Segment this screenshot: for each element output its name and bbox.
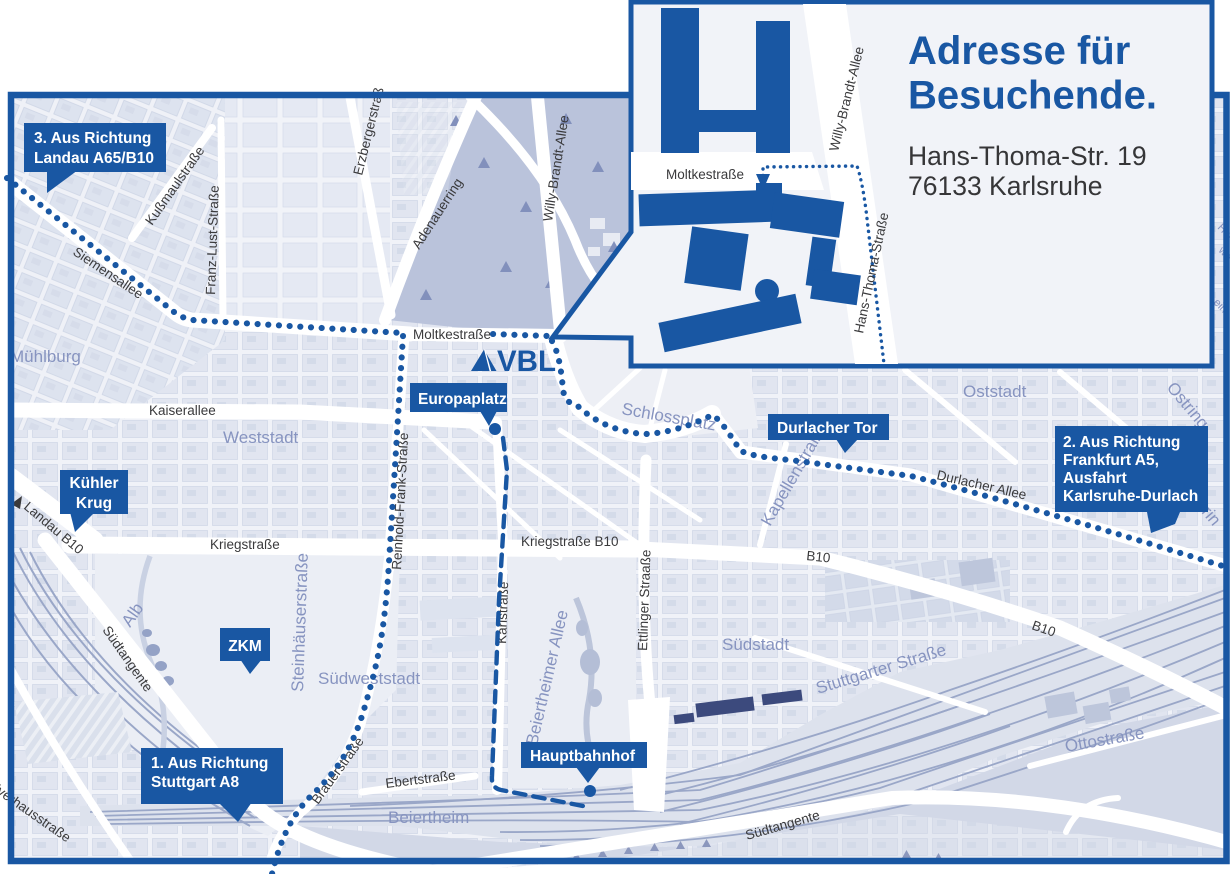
svg-text:Krug: Krug	[76, 495, 112, 512]
svg-text:Besuchende.: Besuchende.	[908, 74, 1157, 118]
svg-text:76133 Karlsruhe: 76133 Karlsruhe	[908, 171, 1102, 201]
svg-text:Moltkestraße: Moltkestraße	[413, 327, 491, 342]
svg-text:Durlacher Tor: Durlacher Tor	[777, 420, 878, 437]
svg-text:VBL: VBL	[497, 345, 556, 378]
svg-text:Kühler: Kühler	[69, 475, 118, 492]
svg-text:Hauptbahnhof: Hauptbahnhof	[530, 748, 636, 765]
svg-text:Landau A65/B10: Landau A65/B10	[34, 150, 154, 167]
svg-text:Oststadt: Oststadt	[963, 382, 1027, 401]
svg-text:Südstadt: Südstadt	[722, 635, 789, 654]
svg-text:Hans-Thoma-Str. 19: Hans-Thoma-Str. 19	[908, 141, 1147, 171]
svg-text:Karlsruhe-Durlach: Karlsruhe-Durlach	[1063, 488, 1198, 505]
svg-text:2. Aus Richtung: 2. Aus Richtung	[1063, 434, 1180, 451]
svg-text:Mühlburg: Mühlburg	[10, 347, 81, 366]
svg-text:Europaplatz: Europaplatz	[418, 391, 507, 408]
svg-text:Kriegstraße B10: Kriegstraße B10	[521, 534, 619, 549]
svg-text:Beiertheim: Beiertheim	[388, 808, 469, 827]
svg-text:Ausfahrt: Ausfahrt	[1063, 470, 1127, 487]
svg-text:Stuttgart A8: Stuttgart A8	[151, 774, 239, 791]
svg-text:1. Aus Richtung: 1. Aus Richtung	[151, 755, 268, 772]
svg-text:Frankfurt A5,: Frankfurt A5,	[1063, 452, 1159, 469]
svg-text:3. Aus Richtung: 3. Aus Richtung	[34, 130, 151, 147]
svg-text:Moltkestraße: Moltkestraße	[666, 167, 744, 182]
svg-text:Kaiserallee: Kaiserallee	[149, 403, 216, 418]
svg-text:Adresse für: Adresse für	[908, 29, 1130, 73]
svg-text:ZKM: ZKM	[228, 638, 262, 655]
svg-text:B10: B10	[806, 548, 831, 565]
svg-text:Weststadt: Weststadt	[223, 428, 299, 447]
svg-text:Kriegstraße: Kriegstraße	[210, 537, 280, 552]
